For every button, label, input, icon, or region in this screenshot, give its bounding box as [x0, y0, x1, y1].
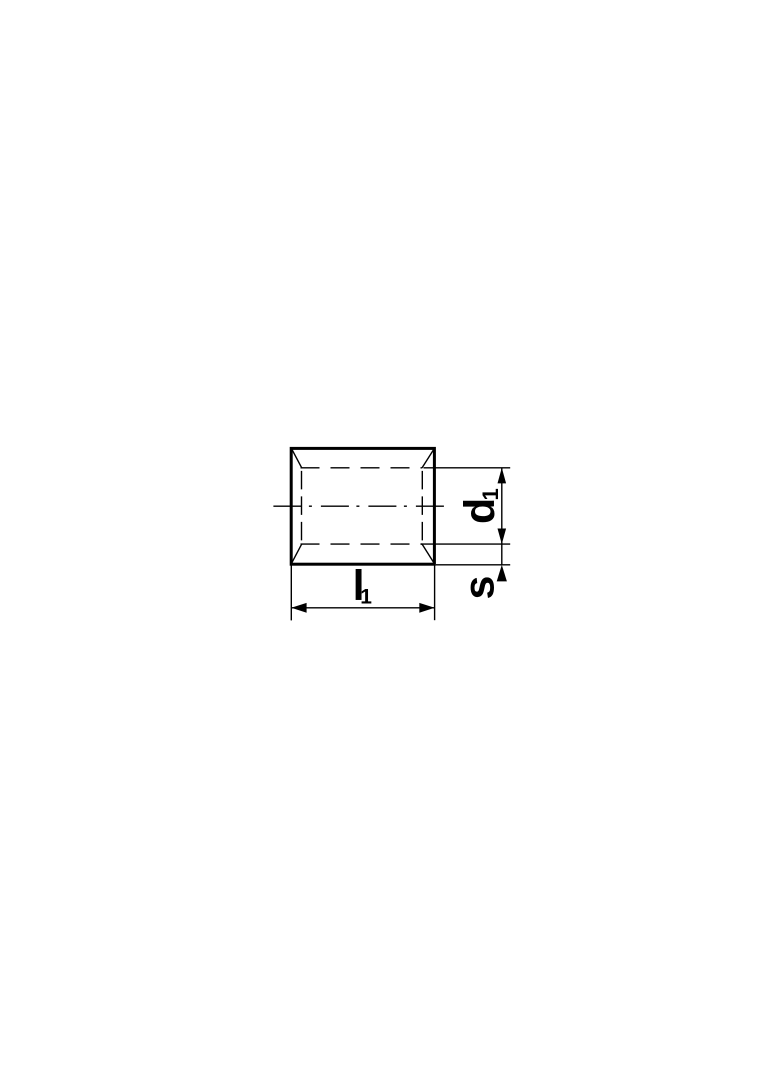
svg-text:1: 1: [478, 488, 503, 500]
svg-text:d: d: [456, 498, 504, 524]
svg-text:1: 1: [360, 586, 372, 609]
svg-text:s: s: [456, 576, 504, 600]
